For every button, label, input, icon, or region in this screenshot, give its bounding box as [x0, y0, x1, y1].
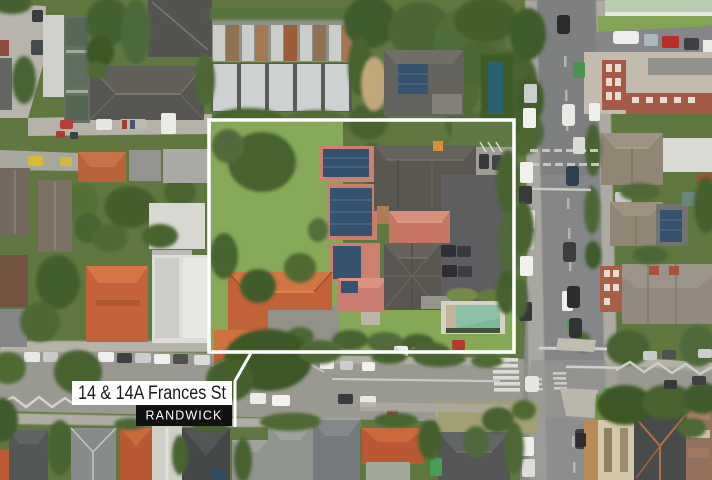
svg-text:RANDWICK: RANDWICK	[146, 408, 223, 423]
svg-text:14 & 14A Frances St: 14 & 14A Frances St	[78, 383, 227, 404]
